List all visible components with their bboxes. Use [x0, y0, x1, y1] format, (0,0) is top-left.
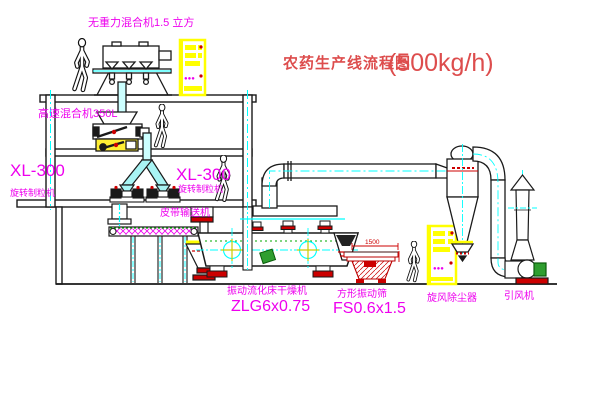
wall-downcomer-duct: [243, 202, 252, 272]
label-granulator-left-name: 旋转制粒机: [10, 187, 55, 198]
label-fan: 引风机: [504, 289, 534, 302]
fan-motor: [534, 263, 546, 276]
y-chute: [120, 160, 170, 191]
cabinet2-indicators: ●●●: [433, 266, 444, 272]
cabinet1-indicators: ●●●: [184, 76, 195, 82]
pit-discharge-duct: [108, 204, 131, 226]
exhaust-stack-fan: [505, 170, 548, 284]
label-highspeed-mixer: 高速混合机350L: [38, 106, 117, 120]
person-figure: [75, 39, 88, 90]
label-granulator-center-model: XL-300: [176, 165, 231, 184]
control-cabinet-upper: ●●●: [180, 40, 205, 95]
exhaust-duct: [240, 161, 452, 219]
label-screen-model: FS0.6x1.5: [333, 300, 406, 317]
label-granulator-left-model: XL-300: [10, 161, 65, 180]
flow-diagram-canvas: ●●●: [0, 0, 600, 403]
person-figure: [156, 104, 167, 146]
dryer-top-fittings: [251, 221, 332, 233]
fluid-bed-dryer: [196, 221, 360, 277]
label-cyclone: 旋风除尘器: [427, 291, 477, 304]
dryer-feet: [207, 266, 333, 277]
label-belt-conveyor: 皮带输送机: [160, 206, 210, 219]
person-figure: [408, 241, 418, 280]
drawing-capacity: (500kg/h): [388, 49, 494, 77]
label-dryer-name: 振动流化床干燥机: [227, 284, 307, 297]
vibrating-screen: [344, 243, 399, 283]
process-flow-drawing: ●●●: [0, 0, 600, 403]
return-air-duct: [473, 147, 516, 277]
control-cabinet-lower: ●●●: [428, 226, 456, 284]
gravity-mixer: [93, 42, 172, 114]
screen-dimension: 1500: [365, 239, 380, 246]
label-gravity-mixer: 无重力混合机1.5 立方: [88, 15, 194, 29]
belt-conveyor: [109, 227, 198, 283]
label-granulator-center-name: 旋转制粒机: [178, 183, 223, 194]
label-screen-name: 方形振动筛: [337, 287, 387, 300]
label-dryer-model: ZLG6x0.75: [231, 298, 310, 315]
